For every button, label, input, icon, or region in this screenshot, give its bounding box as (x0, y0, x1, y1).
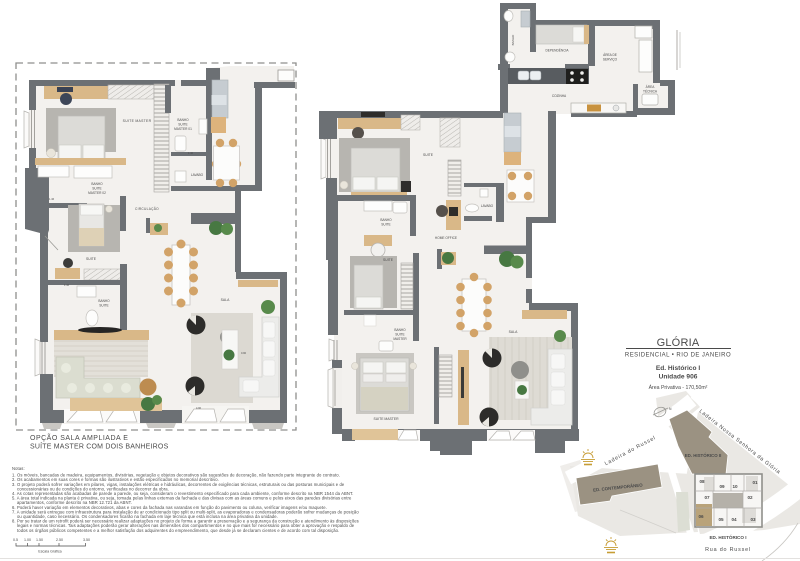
svg-text:1.00: 1.00 (24, 538, 31, 542)
svg-text:DEPENDÊNCIA: DEPENDÊNCIA (545, 48, 569, 53)
svg-text:Rua do Russel: Rua do Russel (705, 547, 751, 553)
svg-text:10: 10 (732, 484, 738, 489)
svg-text:SERVIÇO: SERVIÇO (603, 58, 618, 62)
svg-text:ÁREA DE: ÁREA DE (603, 53, 617, 57)
svg-text:SUITE: SUITE (395, 333, 404, 337)
svg-text:02: 02 (747, 495, 753, 500)
svg-text:BANHO: BANHO (91, 182, 103, 186)
svg-text:todos os órgãos públicos compe: todos os órgãos públicos competentes e a… (17, 528, 339, 533)
svg-text:RESIDENCIAL • RIO DE JANEIRO: RESIDENCIAL • RIO DE JANEIRO (625, 353, 731, 359)
svg-text:Notas:: Notas: (12, 466, 25, 471)
svg-text:SUITE: SUITE (178, 123, 187, 127)
svg-text:SUITE: SUITE (381, 223, 390, 227)
svg-text:ED. HISTÓRICO II: ED. HISTÓRICO II (685, 453, 722, 458)
svg-text:SALA: SALA (509, 330, 518, 334)
svg-text:1.50: 1.50 (36, 538, 43, 542)
svg-text:03: 03 (750, 517, 756, 522)
svg-text:01: 01 (752, 480, 758, 485)
svg-text:GLÓRIA: GLÓRIA (657, 336, 700, 349)
svg-text:SUITE MASTER: SUITE MASTER (373, 417, 399, 421)
svg-text:MASTER 02: MASTER 02 (88, 191, 106, 195)
svg-text:04: 04 (731, 517, 737, 522)
svg-text:SALA: SALA (221, 298, 230, 302)
svg-text:Ed. Histórico I: Ed. Histórico I (656, 365, 700, 372)
svg-text:SUITE: SUITE (92, 187, 101, 191)
svg-text:2.50: 2.50 (56, 538, 63, 542)
svg-text:Unidade 906: Unidade 906 (659, 374, 698, 381)
svg-text:LAVABO: LAVABO (191, 173, 204, 177)
svg-text:SUITE: SUITE (423, 153, 434, 157)
svg-text:LAVABO: LAVABO (481, 204, 494, 208)
svg-text:Escala Gráfica: Escala Gráfica (38, 550, 61, 554)
svg-text:3.50: 3.50 (83, 538, 90, 542)
svg-text:4.90: 4.90 (196, 406, 202, 410)
svg-text:CIRCULAÇÃO: CIRCULAÇÃO (135, 206, 159, 211)
svg-text:MASTER 01: MASTER 01 (174, 127, 192, 131)
svg-text:SUITE: SUITE (99, 304, 108, 308)
svg-text:COZINHA: COZINHA (552, 94, 567, 98)
svg-text:1.46: 1.46 (64, 283, 70, 287)
svg-text:SUITE MASTER: SUITE MASTER (123, 119, 152, 123)
svg-text:ED. HISTÓRICO I: ED. HISTÓRICO I (709, 533, 746, 540)
svg-text:1.40: 1.40 (188, 151, 194, 155)
svg-text:BANHO: BANHO (177, 118, 189, 122)
svg-text:TÉCNICA: TÉCNICA (643, 89, 658, 94)
svg-text:SUITE: SUITE (86, 257, 97, 261)
svg-text:05: 05 (718, 517, 724, 522)
svg-text:OPÇÃO SALA AMPLIADA E: OPÇÃO SALA AMPLIADA E (30, 433, 128, 442)
svg-text:07: 07 (704, 495, 710, 500)
svg-text:1.46: 1.46 (49, 197, 55, 201)
svg-text:BANHO: BANHO (511, 34, 515, 45)
svg-text:0.5: 0.5 (13, 538, 18, 542)
svg-text:BANHO: BANHO (98, 299, 110, 303)
svg-text:MASTER: MASTER (393, 337, 407, 341)
svg-text:06: 06 (698, 514, 704, 519)
svg-text:SUITE: SUITE (383, 258, 394, 262)
svg-text:BANHO: BANHO (394, 328, 406, 332)
svg-text:ÁREA: ÁREA (646, 85, 656, 89)
svg-text:Área Privativa - 170,50m²: Área Privativa - 170,50m² (649, 384, 708, 391)
svg-text:HOME OFFICE: HOME OFFICE (435, 236, 457, 240)
svg-text:0.90: 0.90 (241, 351, 247, 355)
svg-text:SUÍTE MASTER COM DOIS BANHEIRO: SUÍTE MASTER COM DOIS BANHEIROS (30, 442, 169, 451)
svg-text:08: 08 (699, 479, 705, 484)
svg-text:09: 09 (719, 484, 725, 489)
svg-text:BANHO: BANHO (380, 218, 392, 222)
